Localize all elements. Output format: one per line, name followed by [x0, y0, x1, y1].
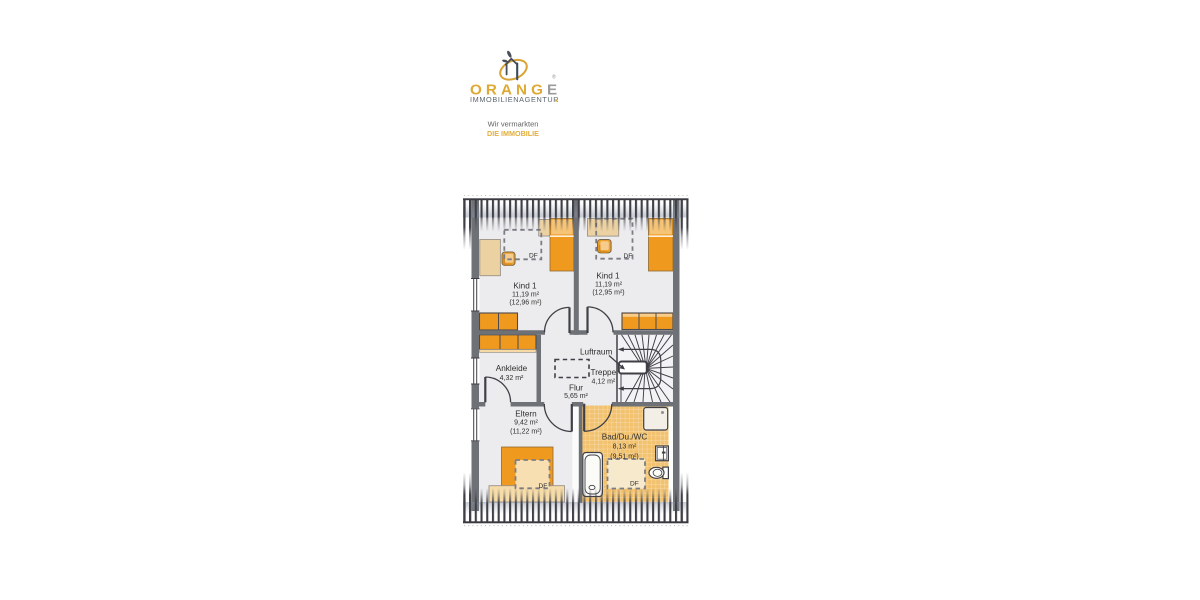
- svg-text:Flur: Flur: [569, 384, 583, 393]
- svg-text:(11,22 m²): (11,22 m²): [510, 429, 542, 436]
- svg-text:Wir vermarkten: Wir vermarkten: [488, 120, 539, 129]
- svg-text:9,42 m²: 9,42 m²: [514, 420, 538, 427]
- svg-text:Kind 1: Kind 1: [513, 282, 537, 291]
- svg-text:DF: DF: [624, 253, 633, 260]
- svg-text:11,19 m²: 11,19 m²: [595, 282, 623, 289]
- svg-text:5,65 m²: 5,65 m²: [564, 393, 588, 400]
- svg-text:Kind 1: Kind 1: [596, 272, 620, 281]
- svg-text:Bad/Du./WC: Bad/Du./WC: [602, 433, 648, 442]
- svg-text:(12,96 m²): (12,96 m²): [509, 300, 541, 307]
- svg-text:Eltern: Eltern: [515, 410, 537, 419]
- svg-text:8,13 m²: 8,13 m²: [613, 444, 637, 451]
- svg-text:11,19 m²: 11,19 m²: [512, 292, 540, 299]
- svg-text:4,32 m²: 4,32 m²: [500, 375, 524, 382]
- svg-text:IMMOBILIENAGENTUR: IMMOBILIENAGENTUR: [470, 95, 559, 104]
- svg-text:DIE IMMOBILIE: DIE IMMOBILIE: [487, 129, 539, 138]
- svg-text:®: ®: [552, 74, 556, 81]
- svg-text:4,12 m²: 4,12 m²: [592, 379, 616, 386]
- svg-text:DF: DF: [529, 253, 538, 260]
- svg-text:Ankleide: Ankleide: [496, 364, 528, 373]
- svg-text:(9,51 m²): (9,51 m²): [610, 454, 638, 461]
- svg-text:(12,95 m²): (12,95 m²): [592, 290, 624, 297]
- svg-text:Treppe: Treppe: [591, 368, 617, 377]
- svg-text:Luftraum: Luftraum: [580, 348, 612, 357]
- svg-text:DF: DF: [630, 481, 639, 488]
